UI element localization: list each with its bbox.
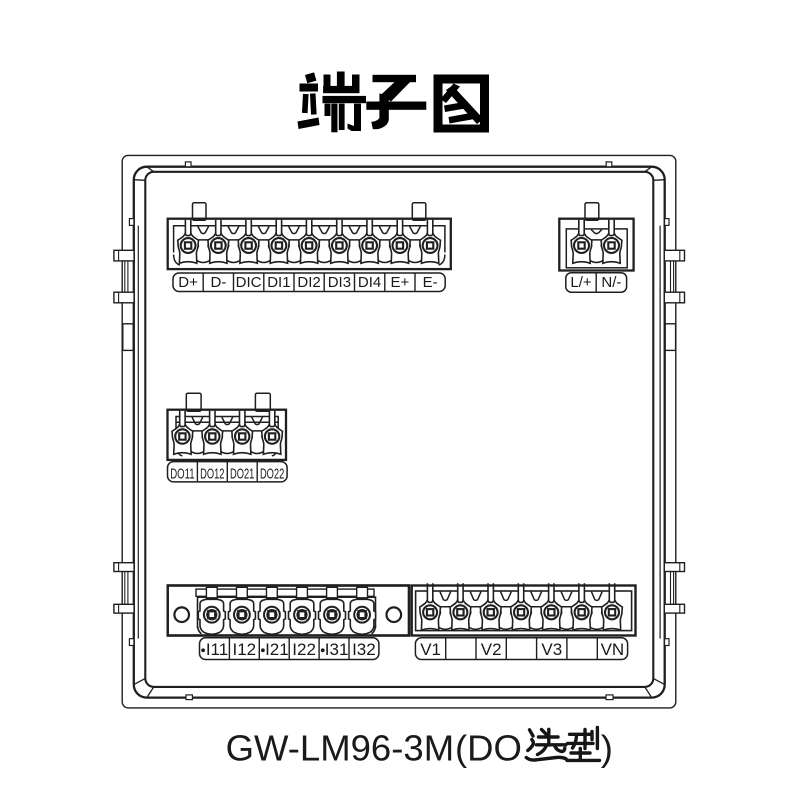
svg-text:E-: E- bbox=[423, 274, 438, 291]
svg-text:DI1: DI1 bbox=[267, 274, 290, 291]
svg-text:I31: I31 bbox=[325, 640, 349, 659]
svg-text:DIC: DIC bbox=[236, 274, 262, 291]
svg-text:I22: I22 bbox=[292, 640, 316, 659]
svg-text:V3: V3 bbox=[541, 640, 562, 659]
svg-text:(DO: (DO bbox=[455, 728, 522, 769]
svg-text:V1: V1 bbox=[420, 640, 441, 659]
svg-text:I12: I12 bbox=[232, 640, 256, 659]
svg-text:DO21: DO21 bbox=[230, 466, 254, 483]
svg-text:I21: I21 bbox=[265, 640, 289, 659]
svg-text:I32: I32 bbox=[352, 640, 376, 659]
svg-text:V2: V2 bbox=[481, 640, 502, 659]
svg-text:DI4: DI4 bbox=[358, 274, 381, 291]
svg-text:L/+: L/+ bbox=[570, 274, 592, 291]
svg-text:): ) bbox=[601, 728, 613, 769]
svg-text:DI3: DI3 bbox=[328, 274, 351, 291]
svg-text:DI2: DI2 bbox=[297, 274, 320, 291]
svg-text:E+: E+ bbox=[391, 274, 410, 291]
svg-text:DO22: DO22 bbox=[260, 466, 284, 483]
svg-text:I11: I11 bbox=[206, 640, 228, 659]
svg-text:D+: D+ bbox=[178, 274, 198, 291]
svg-text:D-: D- bbox=[210, 274, 226, 291]
svg-text:N/-: N/- bbox=[601, 274, 621, 291]
svg-text:VN: VN bbox=[601, 640, 625, 659]
svg-text:GW-LM96-3M: GW-LM96-3M bbox=[226, 728, 455, 769]
svg-text:DO11: DO11 bbox=[170, 466, 194, 483]
svg-text:DO12: DO12 bbox=[200, 466, 224, 483]
